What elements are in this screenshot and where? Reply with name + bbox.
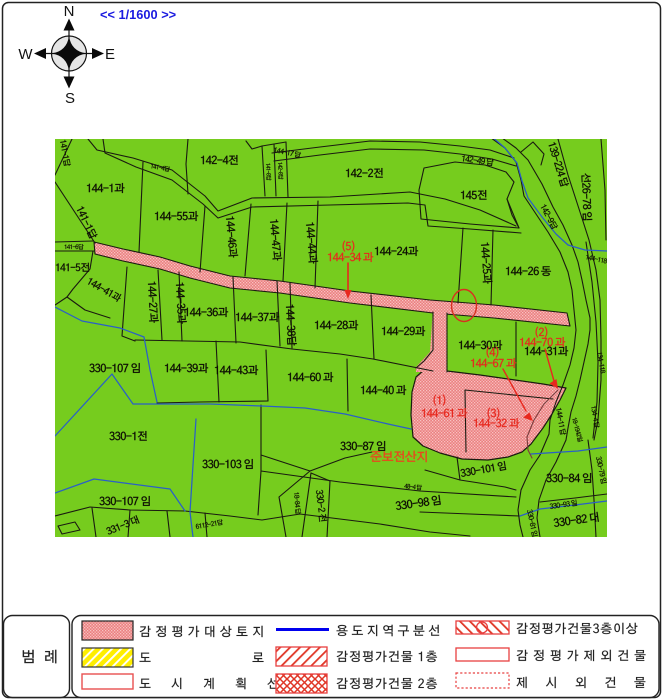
svg-text:E: E (105, 46, 115, 63)
svg-text:<< 1/1600 >>: << 1/1600 >> (100, 7, 176, 22)
svg-text:N: N (64, 3, 75, 20)
svg-text:S: S (65, 90, 75, 107)
svg-text:W: W (18, 46, 33, 63)
